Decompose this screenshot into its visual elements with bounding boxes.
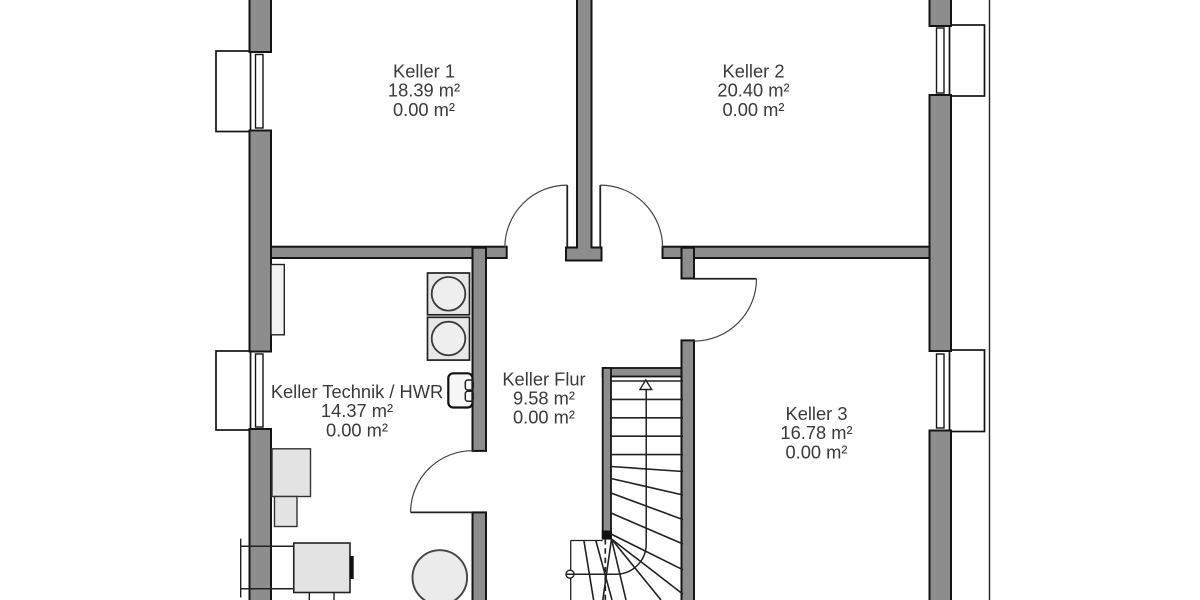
svg-text:Keller 3: Keller 3: [786, 403, 848, 424]
svg-text:Keller 1: Keller 1: [393, 61, 455, 82]
svg-text:20.40 m²: 20.40 m²: [717, 80, 789, 101]
svg-text:Keller 2: Keller 2: [723, 61, 785, 82]
svg-text:16.78 m²: 16.78 m²: [780, 422, 852, 443]
svg-text:0.00 m²: 0.00 m²: [786, 441, 848, 462]
svg-text:9.58 m²: 9.58 m²: [513, 388, 575, 409]
svg-text:0.00 m²: 0.00 m²: [513, 407, 575, 428]
svg-text:Keller Technik / HWR: Keller Technik / HWR: [271, 381, 443, 402]
svg-text:0.00 m²: 0.00 m²: [326, 419, 388, 440]
svg-text:0.00 m²: 0.00 m²: [723, 99, 785, 120]
svg-text:Keller Flur: Keller Flur: [502, 368, 585, 389]
svg-text:18.39 m²: 18.39 m²: [388, 80, 460, 101]
svg-text:14.37 m²: 14.37 m²: [321, 400, 393, 421]
svg-text:0.00 m²: 0.00 m²: [393, 99, 455, 120]
